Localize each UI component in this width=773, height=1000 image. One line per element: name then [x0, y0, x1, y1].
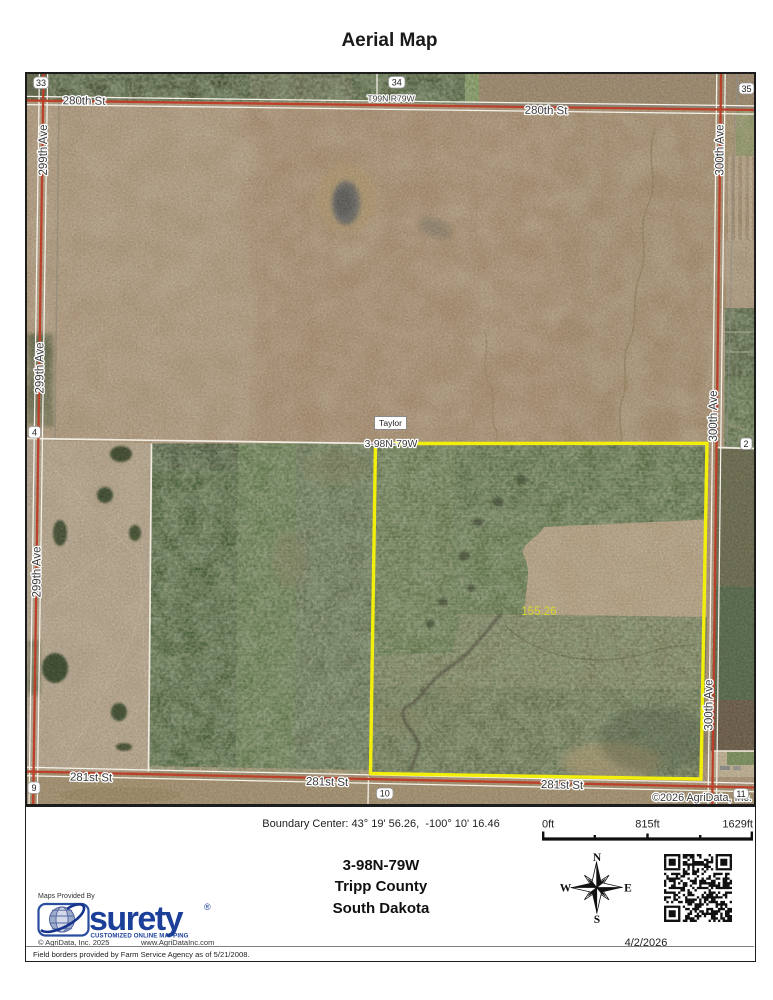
svg-text:280th St: 280th St [525, 105, 569, 118]
svg-text:34: 34 [392, 78, 402, 88]
svg-text:9: 9 [31, 783, 36, 793]
svg-text:2: 2 [743, 439, 748, 449]
svg-text:10: 10 [380, 789, 390, 799]
svg-text:155.26: 155.26 [521, 606, 556, 618]
svg-text:299th Ave: 299th Ave [32, 547, 44, 598]
svg-text:Taylor: Taylor [379, 418, 402, 428]
svg-text:N: N [593, 852, 602, 864]
svg-text:11: 11 [736, 789, 745, 799]
svg-text:1629ft: 1629ft [722, 819, 753, 831]
svg-text:35: 35 [741, 84, 751, 94]
svg-text:4: 4 [32, 428, 37, 438]
svg-text:281st St: 281st St [306, 776, 349, 789]
svg-text:815ft: 815ft [635, 819, 659, 831]
svg-text:281st St: 281st St [70, 772, 113, 785]
svg-text:281st St: 281st St [541, 779, 584, 792]
svg-text:299th Ave: 299th Ave [35, 343, 47, 394]
svg-text:0ft: 0ft [542, 819, 554, 831]
svg-text:®: ® [204, 902, 211, 912]
svg-text:S: S [594, 914, 600, 926]
svg-text:3-98N-79W: 3-98N-79W [365, 439, 418, 450]
svg-text:E: E [624, 883, 632, 895]
svg-text:299th Ave: 299th Ave [38, 125, 50, 176]
svg-text:300th Ave: 300th Ave [715, 125, 727, 176]
svg-text:300th Ave: 300th Ave [708, 391, 720, 442]
svg-text:280th St: 280th St [63, 95, 107, 108]
svg-text:33: 33 [36, 78, 46, 88]
svg-text:300th Ave: 300th Ave [704, 680, 716, 731]
svg-text:W: W [560, 883, 572, 895]
svg-text:T99N R79W: T99N R79W [367, 94, 415, 104]
